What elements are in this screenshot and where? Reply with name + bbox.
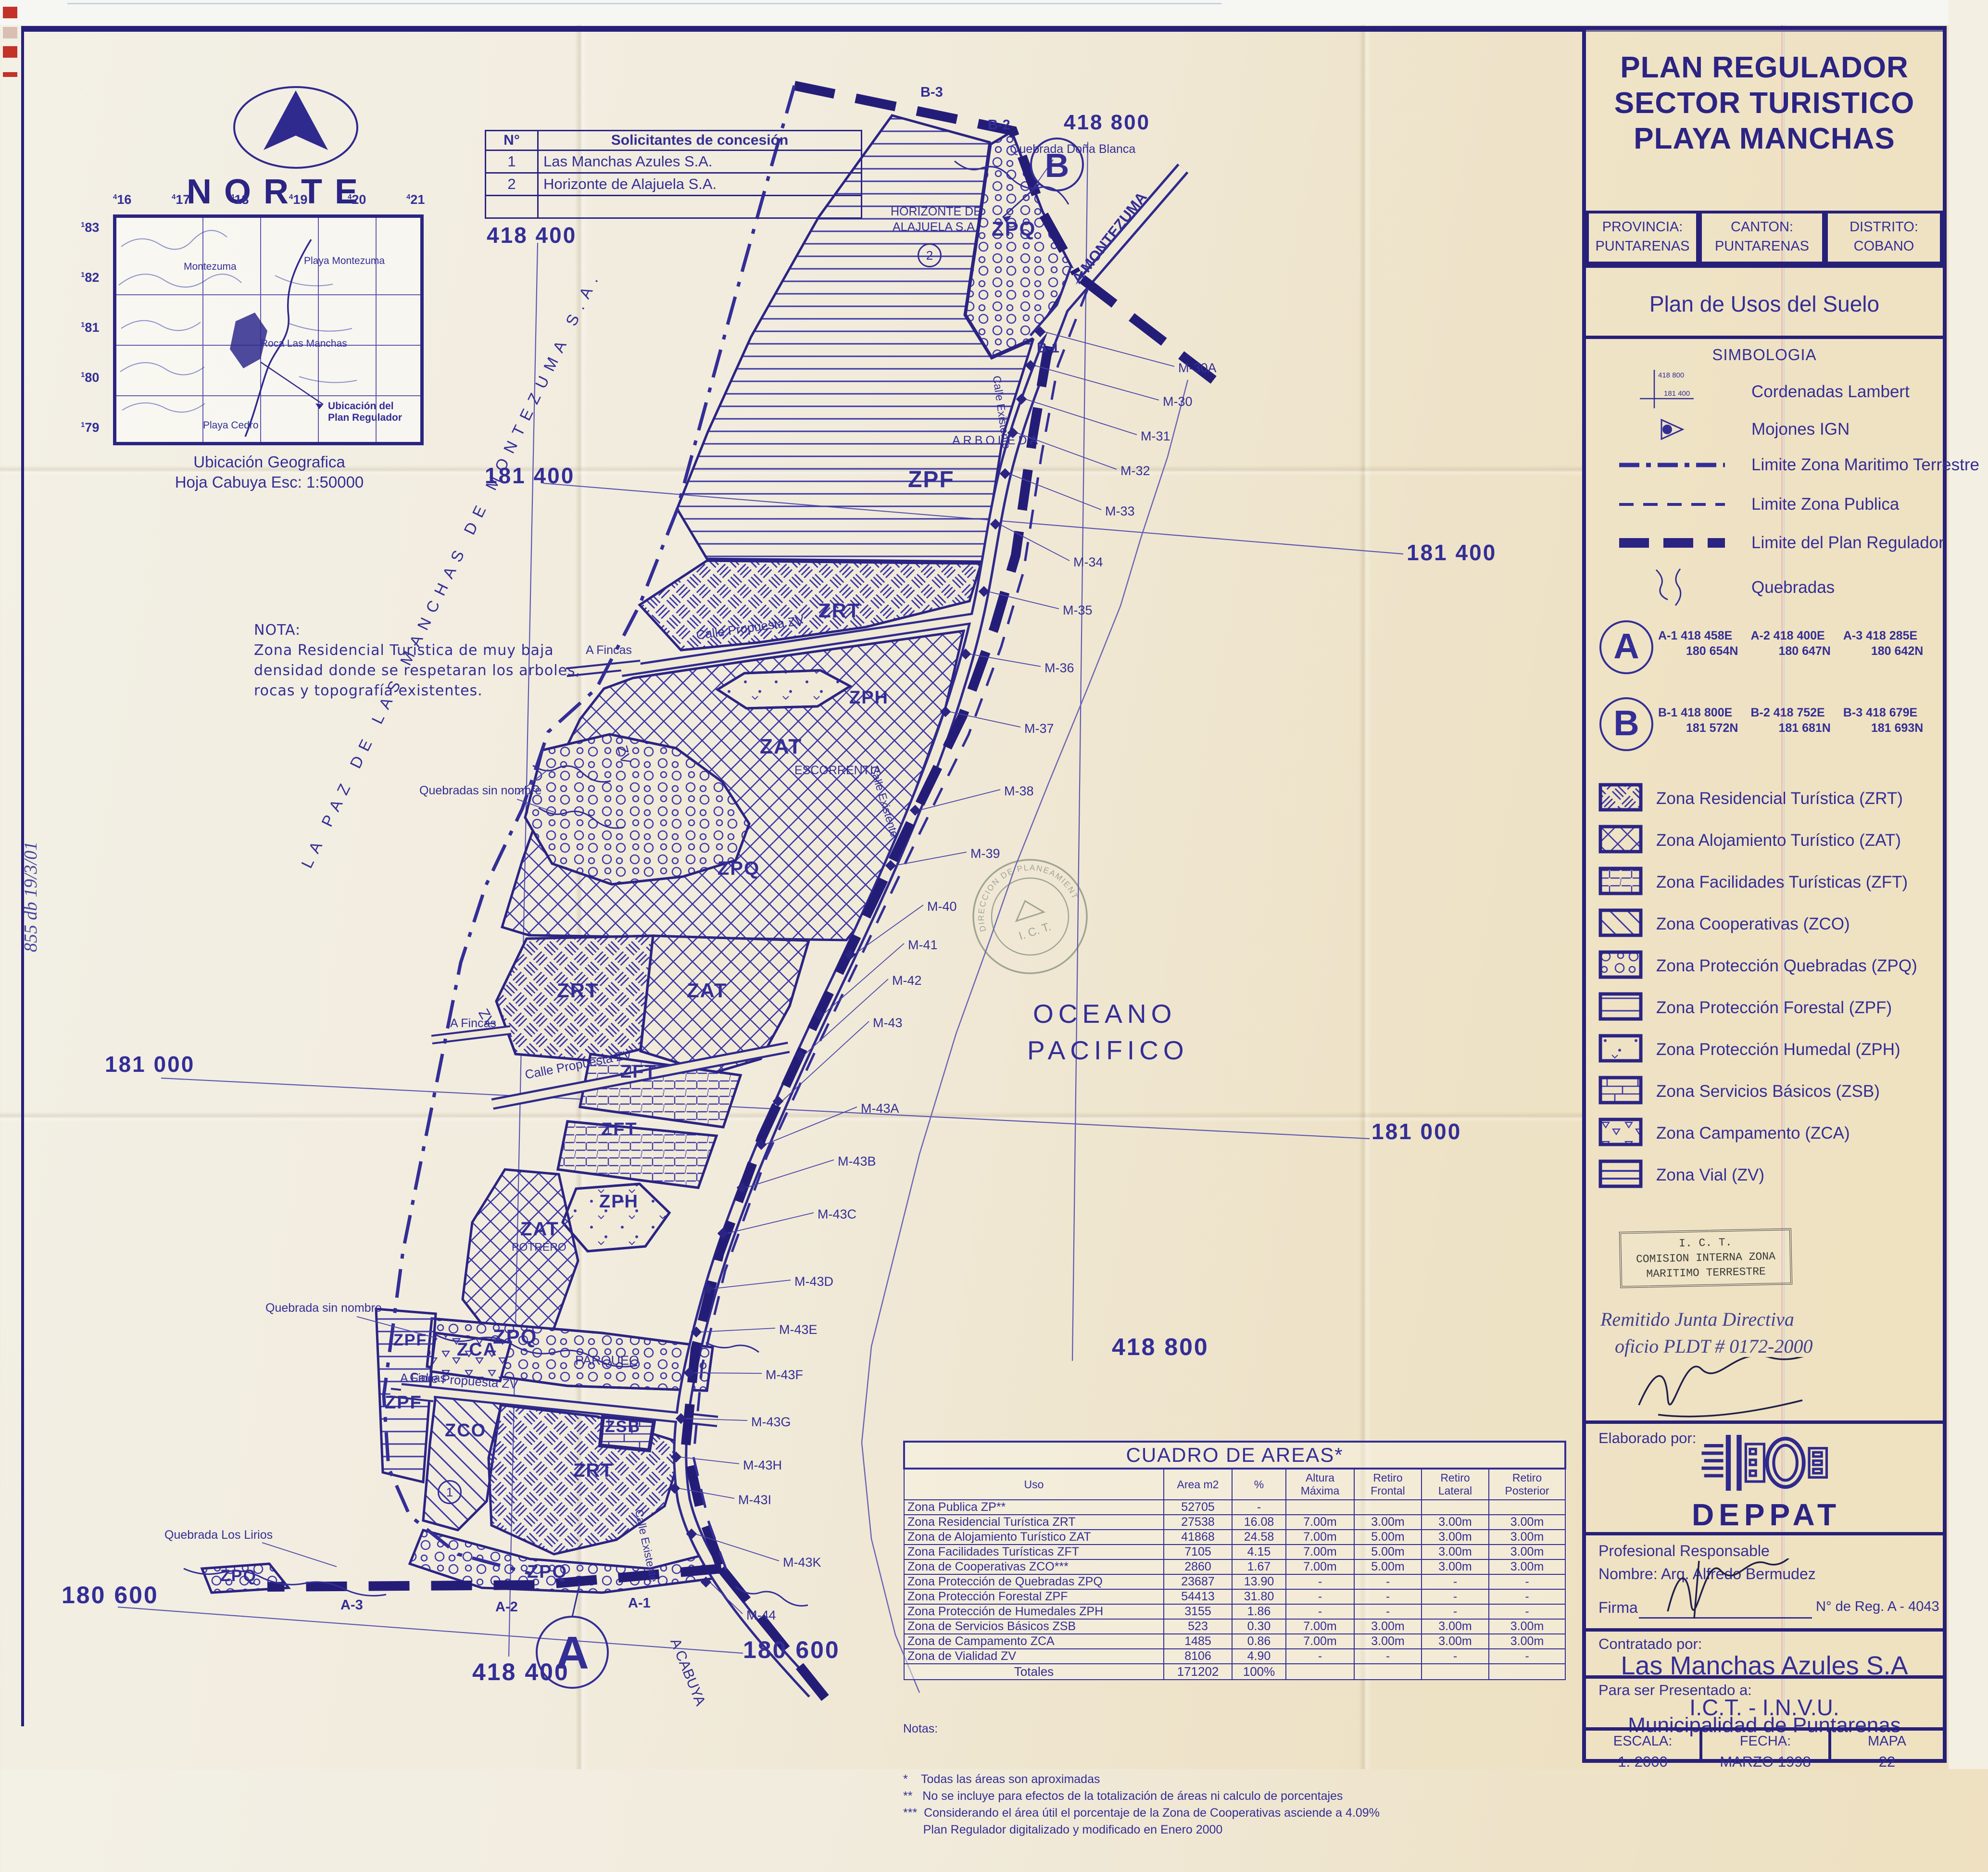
ref-coord-e: B-3 418 679E [1843, 705, 1923, 720]
inset-label-roca-las-manchas: Roca Las Manchas [261, 338, 347, 350]
areas-value-cell: - [1354, 1589, 1422, 1604]
inset-left-tick: 180 [81, 370, 99, 385]
mojon-label-M-33: M-33 [1105, 504, 1135, 518]
mapa-label: MAPA [1868, 1734, 1906, 1749]
dashed-icon [1593, 496, 1751, 513]
north-arrow [226, 82, 365, 180]
mojon-label-M-43G: M-43G [751, 1415, 791, 1429]
zone-zsb [600, 1417, 654, 1450]
mojon-label-M-43C: M-43C [818, 1207, 856, 1221]
legend-swatch-zca [1598, 1118, 1643, 1149]
heavy-icon [1593, 533, 1751, 553]
legend-zone-label: Zona Facilidades Turísticas (ZFT) [1656, 873, 1908, 892]
solicitante-number [486, 196, 538, 218]
legend-zone-label: Zona Alojamiento Turístico (ZAT) [1656, 831, 1901, 850]
solicitante-name: Las Manchas Azules S.A. [538, 151, 862, 173]
symbology-item-dashdot: Limite Zona Maritimo Terrestre [1593, 455, 1979, 475]
areas-value-cell: 3.00m [1489, 1634, 1565, 1649]
mojon-label-M-32: M-32 [1120, 464, 1150, 478]
areas-value-cell: 23687 [1164, 1574, 1232, 1589]
areas-total-label: Totales [904, 1664, 1164, 1680]
areas-value-cell: 3.00m [1422, 1530, 1489, 1545]
deppat-wordmark: DEPPAT [1663, 1497, 1870, 1533]
ref-b-circle: B [1599, 697, 1653, 751]
mojon-leader-M-43H [680, 1457, 739, 1464]
areas-value-cell: - [1286, 1649, 1354, 1664]
legend-swatch-zrt [1598, 783, 1643, 814]
symbology-items: 418 800181 400Cordenadas LambertMojones … [1586, 364, 1943, 604]
solicitante-row: 1Las Manchas Azules S.A. [486, 151, 862, 173]
areas-value-cell: 1.86 [1232, 1604, 1286, 1619]
areas-value-cell: 3.00m [1489, 1545, 1565, 1559]
areas-row: Zona Protección de Quebradas ZPQ2368713.… [904, 1574, 1565, 1589]
areas-value-cell: - [1354, 1649, 1422, 1664]
areas-value-cell: 3.00m [1489, 1530, 1565, 1545]
areas-notes: Notas: * Todas las áreas son aproximadas… [903, 1687, 1566, 1872]
mojon-label-M-30A: M-30A [1178, 361, 1217, 375]
areas-value-cell: 1.67 [1232, 1559, 1286, 1574]
areas-col-header: % [1232, 1469, 1286, 1500]
areas-row: Zona Residencial Turística ZRT2753816.08… [904, 1515, 1565, 1530]
zone-zrt-mid [496, 936, 653, 1061]
legend-zone-label: Zona Cooperativas (ZCO) [1656, 915, 1850, 934]
legend-swatch-zco [1598, 908, 1643, 940]
contratado-label: Contratado por: [1598, 1635, 1702, 1653]
panel-refpoints-section: A A-1 418 458E180 654NA-2 418 400E180 64… [1586, 603, 1943, 776]
nota-line2: densidad donde se respetaran los arboles… [254, 661, 580, 681]
mojon-icon [1593, 416, 1751, 443]
areas-value-cell: 31.80 [1232, 1589, 1286, 1604]
panel-zones-legend: Zona Residencial Turística (ZRT)Zona Alo… [1586, 776, 1943, 1203]
legend-zone-label: Zona Vial (ZV) [1656, 1166, 1764, 1185]
ref-a-col: A-3 418 285E180 642N [1843, 628, 1923, 659]
areas-value-cell: 3.00m [1422, 1634, 1489, 1649]
legend-zone-zv: Zona Vial (ZV) [1598, 1159, 1764, 1191]
ref-letter-a: A [555, 1627, 589, 1679]
areas-total-pct: 100% [1232, 1664, 1286, 1680]
areas-value-cell: 3.00m [1489, 1619, 1565, 1634]
ict-stamp-center: I. C. T. [1017, 920, 1053, 942]
inset-left-ticks: 183182181180179 [72, 220, 111, 461]
areas-value-cell: 3.00m [1489, 1515, 1565, 1530]
solicitante-number: 2 [486, 173, 538, 196]
nota-line3: rocas y topografía existentes. [254, 681, 580, 701]
areas-col-header: Altura Máxima [1286, 1469, 1354, 1500]
ref-coord-e: A-3 418 285E [1843, 628, 1923, 643]
areas-row: Zona Publica ZP**52705- [904, 1500, 1565, 1515]
ref-coord-n: 180 647N [1750, 643, 1830, 659]
inset-label-montezuma: Montezuma [184, 261, 237, 273]
areas-note-line: *** Considerando el área útil el porcent… [903, 1805, 1566, 1822]
mojon-leader-M-39 [894, 852, 967, 866]
solicitante-name [538, 196, 862, 218]
areas-value-cell [1286, 1500, 1354, 1515]
map-title-line1: PLAN REGULADOR [1586, 50, 1943, 86]
legend-zone-zsb: Zona Servicios Básicos (ZSB) [1598, 1076, 1880, 1107]
legend-zone-zrt: Zona Residencial Turística (ZRT) [1598, 783, 1903, 814]
mapa-value: 22 [1831, 1753, 1943, 1771]
mojon-label-M-30: M-30 [1163, 394, 1193, 409]
ref-coord-e: A-2 418 400E [1750, 628, 1830, 643]
inset-left-tick: 183 [81, 220, 99, 235]
legend-swatch-zpq [1598, 950, 1643, 981]
areas-uso-cell: Zona Protección Forestal ZPF [904, 1589, 1164, 1604]
nota-block: NOTA: Zona Residencial Turistica de muy … [254, 620, 580, 701]
areas-value-cell: - [1286, 1574, 1354, 1589]
mojon-label-M-43F: M-43F [766, 1368, 803, 1382]
areas-total-empty [1286, 1664, 1354, 1680]
areas-value-cell: - [1422, 1604, 1489, 1619]
solicitante-name: Horizonte de Alajuela S.A. [538, 173, 862, 196]
mojon-label-M-36: M-36 [1044, 661, 1074, 675]
mojon-label-M-34: M-34 [1073, 555, 1103, 569]
inset-label-ubicacion-2: Plan Regulador [328, 412, 402, 424]
areas-row: Zona de Servicios Básicos ZSB5230.307.00… [904, 1619, 1565, 1634]
symbology-item-dashed: Limite Zona Publica [1593, 495, 1899, 514]
firma-signature [1648, 1558, 1807, 1621]
areas-uso-cell: Zona de Servicios Básicos ZSB [904, 1619, 1164, 1634]
areas-row: Zona Protección de Humedales ZPH31551.86… [904, 1604, 1565, 1619]
areas-value-cell: - [1232, 1500, 1286, 1515]
inset-top-tick: 421 [406, 192, 425, 207]
legend-zone-zat: Zona Alojamiento Turístico (ZAT) [1598, 825, 1901, 856]
areas-value-cell: - [1354, 1604, 1422, 1619]
areas-value-cell: 7.00m [1286, 1530, 1354, 1545]
areas-value-cell: 0.86 [1232, 1634, 1286, 1649]
areas-value-cell: 13.90 [1232, 1574, 1286, 1589]
ref-coord-e: A-1 418 458E [1658, 628, 1738, 643]
areas-value-cell: 3.00m [1422, 1515, 1489, 1530]
areas-value-cell: 7.00m [1286, 1634, 1354, 1649]
margin-handwriting: 855 db 19/3/01 [20, 842, 41, 952]
north-arrow-icon [226, 82, 365, 178]
areas-value-cell: 52705 [1164, 1500, 1232, 1515]
areas-uso-cell: Zona Protección de Humedales ZPH [904, 1604, 1164, 1619]
mojon-label-M-43A: M-43A [861, 1101, 899, 1116]
panel-stamp-section: I. C. T. COMISION INTERNA ZONA MARITIMO … [1586, 1203, 1943, 1444]
areas-value-cell: 54413 [1164, 1589, 1232, 1604]
areas-value-cell: 3.00m [1422, 1619, 1489, 1634]
areas-row: Zona Protección Forestal ZPF5441331.80--… [904, 1589, 1565, 1604]
areas-value-cell: 8106 [1164, 1649, 1232, 1664]
handwriting-line1: Remitido Junta Directiva [1600, 1307, 1794, 1332]
inset-caption-line1: Ubicación Geografica [125, 452, 414, 472]
mojon-leader-M-38 [919, 790, 1000, 810]
legend-zone-zca: Zona Campamento (ZCA) [1598, 1118, 1850, 1149]
mojon-leader-M-31 [1025, 399, 1137, 435]
legend-zone-zph: Zona Protección Humedal (ZPH) [1598, 1034, 1900, 1065]
ref-b-coords: B-1 418 800E181 572NB-2 418 752E181 681N… [1658, 705, 1936, 736]
legend-swatch-zpf [1598, 992, 1643, 1023]
areas-uso-cell: Zona Publica ZP** [904, 1500, 1164, 1515]
zone-zph-2 [563, 1184, 669, 1251]
areas-value-cell: - [1489, 1574, 1565, 1589]
areas-value-cell: 2860 [1164, 1559, 1232, 1574]
ref-coord-e: B-2 418 752E [1750, 705, 1830, 720]
symbology-item-label: Limite del Plan Regulador [1751, 533, 1944, 553]
symbology-item-label: Quebradas [1751, 578, 1835, 597]
panel-uso-section: Plan de Usos del Suelo [1586, 264, 1943, 336]
panel-title-section: PLAN REGULADOR SECTOR TURISTICO PLAYA MA… [1586, 30, 1943, 211]
areas-notes-title: Notas: [903, 1721, 1566, 1737]
areas-total-area: 171202 [1164, 1664, 1232, 1680]
areas-uso-cell: Zona Residencial Turística ZRT [904, 1515, 1164, 1530]
areas-row: Zona de Cooperativas ZCO***28601.677.00m… [904, 1559, 1565, 1574]
areas-value-cell: 41868 [1164, 1530, 1232, 1545]
areas-value-cell: 3.00m [1354, 1619, 1422, 1634]
areas-value-cell: 3.00m [1489, 1559, 1565, 1574]
stamp-line3: MARITIMO TERRESTRE [1626, 1264, 1786, 1282]
areas-table-wrap: CUADRO DE AREAS* UsoArea m2%Altura Máxim… [903, 1441, 1566, 1872]
mojon-label-M-41: M-41 [908, 938, 938, 952]
inset-map-box: Montezuma Playa Montezuma Roca Las Manch… [113, 214, 424, 445]
ref-coord-n: 181 572N [1658, 720, 1738, 736]
areas-note-line: ** No se incluye para efectos de la tota… [903, 1788, 1566, 1805]
solicitantes-col2: Solicitantes de concesión [538, 131, 862, 151]
signature-scribble [1629, 1357, 1831, 1429]
inset-left-tick: 181 [81, 320, 99, 335]
areas-value-cell: - [1354, 1574, 1422, 1589]
inset-top-tick: 420 [348, 192, 366, 207]
areas-value-cell: 523 [1164, 1619, 1232, 1634]
inset-left-tick: 179 [81, 420, 99, 435]
mojon-label-M-43K: M-43K [783, 1555, 821, 1570]
panel-presentado-section: Para ser Presentado a: I.C.T. - I.N.V.U.… [1586, 1675, 1943, 1727]
areas-total-row: Totales171202100% [904, 1664, 1565, 1680]
title-panel: PLAN REGULADOR SECTOR TURISTICO PLAYA MA… [1582, 26, 1947, 1763]
solicitantes-table: N° Solicitantes de concesión 1Las Mancha… [485, 130, 862, 219]
areas-value-cell: - [1489, 1604, 1565, 1619]
map-subtitle: Plan de Usos del Suelo [1586, 291, 1943, 317]
panel-jurisdiction-row: PROVINCIA: PUNTARENAS CANTON: PUNTARENAS… [1586, 211, 1943, 264]
mojon-label-M-43: M-43 [873, 1016, 903, 1030]
areas-row: Zona de Vialidad ZV81064.90---- [904, 1649, 1565, 1664]
panel-profesional-section: Profesional Responsable Nombre: Arq. Alf… [1586, 1532, 1943, 1628]
province-value: PUNTARENAS [1589, 237, 1696, 256]
inset-caption-line2: Hoja Cabuya Esc: 1:50000 [125, 472, 414, 492]
map-title-line2: SECTOR TURISTICO [1586, 86, 1943, 121]
elaborado-label: Elaborado por: [1598, 1430, 1696, 1447]
legend-zone-zco: Zona Cooperativas (ZCO) [1598, 908, 1850, 940]
areas-value-cell: 3.00m [1422, 1559, 1489, 1574]
areas-col-header: Uso [904, 1469, 1164, 1500]
ref-coord-n: 180 642N [1843, 643, 1923, 659]
inset-left-tick: 182 [81, 270, 99, 285]
areas-row: Zona de Alojamiento Turístico ZAT4186824… [904, 1530, 1565, 1545]
mojon-label-M-43D: M-43D [794, 1274, 833, 1289]
nota-line1: Zona Residencial Turistica de muy baja [254, 641, 580, 661]
mojon-label-M-37: M-37 [1024, 721, 1054, 736]
areas-note-line: Plan Regulador digitalizado y modificado… [903, 1822, 1566, 1838]
symbology-item-label: Limite Zona Publica [1751, 495, 1899, 514]
areas-value-cell: - [1489, 1589, 1565, 1604]
areas-total-empty [1489, 1664, 1565, 1680]
registro-number: N° de Reg. A - 4043 [1816, 1599, 1939, 1615]
ref-coord-e: B-1 418 800E [1658, 705, 1738, 720]
areas-value-cell: 16.08 [1232, 1515, 1286, 1530]
areas-uso-cell: Zona de Campamento ZCA [904, 1634, 1164, 1649]
legend-swatch-zsb [1598, 1076, 1643, 1107]
inset-top-tick: 418 [230, 192, 249, 207]
mojon-label-M-38: M-38 [1004, 784, 1034, 798]
areas-value-cell: 27538 [1164, 1515, 1232, 1530]
areas-value-cell: 7.00m [1286, 1515, 1354, 1530]
areas-col-header: Retiro Lateral [1422, 1469, 1489, 1500]
mojon-leader-M-32 [1017, 433, 1117, 469]
areas-row: Zona de Campamento ZCA14850.867.00m3.00m… [904, 1634, 1565, 1649]
legend-zone-label: Zona Servicios Básicos (ZSB) [1656, 1082, 1880, 1101]
legend-zone-zpf: Zona Protección Forestal (ZPF) [1598, 992, 1892, 1023]
areas-table-title: CUADRO DE AREAS* [904, 1442, 1565, 1469]
areas-note-line: * Todas las áreas son aproximadas [903, 1771, 1566, 1788]
mojon-label-M-43B: M-43B [838, 1154, 876, 1168]
inset-top-ticks: 416417418419420421 [113, 192, 450, 212]
solicitante-row: 2Horizonte de Alajuela S.A. [486, 173, 862, 196]
mojon-leader-M-43D [712, 1280, 791, 1289]
areas-value-cell: 7.00m [1286, 1559, 1354, 1574]
canton-value: PUNTARENAS [1702, 237, 1822, 256]
areas-value-cell: 5.00m [1354, 1530, 1422, 1545]
areas-value-cell: 7.00m [1286, 1545, 1354, 1559]
solicitantes-col1: N° [486, 131, 538, 151]
firma-label: Firma [1598, 1599, 1638, 1617]
areas-total-empty [1422, 1664, 1489, 1680]
zone-zft-2 [558, 1121, 717, 1188]
dashdot-icon [1593, 456, 1751, 474]
areas-value-cell: - [1422, 1589, 1489, 1604]
legend-zone-zpq: Zona Protección Quebradas (ZPQ) [1598, 950, 1917, 981]
ref-a-circle: A [1599, 620, 1653, 674]
areas-value-cell: - [1489, 1649, 1565, 1664]
ref-b-col: B-2 418 752E181 681N [1750, 705, 1830, 736]
ref-a-col: A-1 418 458E180 654N [1658, 628, 1738, 659]
ref-coord-n: 181 681N [1750, 720, 1830, 736]
province-label: PROVINCIA: [1589, 217, 1696, 237]
symbology-item-label: Mojones IGN [1751, 420, 1850, 439]
areas-value-cell: 24.58 [1232, 1530, 1286, 1545]
areas-value-cell: 4.15 [1232, 1545, 1286, 1559]
areas-value-cell: 4.90 [1232, 1649, 1286, 1664]
ict-stamp-box: I. C. T. COMISION INTERNA ZONA MARITIMO … [1619, 1228, 1792, 1288]
legend-zone-label: Zona Campamento (ZCA) [1656, 1124, 1850, 1143]
handwriting-line2: oficio PLDT # 0172-2000 [1615, 1334, 1813, 1359]
ref-b-col: B-3 418 679E181 693N [1843, 705, 1923, 736]
symbology-item-label: Limite Zona Maritimo Terrestre [1751, 455, 1979, 475]
legend-zone-label: Zona Protección Humedal (ZPH) [1656, 1040, 1900, 1059]
solicitante-number: 1 [486, 151, 538, 173]
inset-top-tick: 419 [289, 192, 307, 207]
fecha-value: MARZO 1998 [1702, 1753, 1828, 1771]
legend-zone-label: Zona Protección Quebradas (ZPQ) [1656, 956, 1917, 976]
mojon-leader-M-34 [999, 524, 1069, 561]
escala-label: ESCALA: [1613, 1734, 1673, 1749]
solicitante-row [486, 196, 862, 218]
symbology-item-heavy: Limite del Plan Regulador [1593, 533, 1944, 553]
zone-zat-bottom [463, 1169, 578, 1343]
areas-value-cell [1422, 1500, 1489, 1515]
areas-col-header: Area m2 [1164, 1469, 1232, 1500]
ref-circle-a: A [537, 1585, 608, 1688]
fecha-label: FECHA: [1740, 1734, 1791, 1749]
mojon-label-M-44: M-44 [746, 1608, 776, 1622]
district-value: COBANO [1828, 237, 1940, 256]
mojon-leader-M-43F [693, 1373, 762, 1373]
ref-coord-n: 180 654N [1658, 643, 1738, 659]
areas-value-cell: 5.00m [1354, 1545, 1422, 1559]
areas-value-cell: - [1286, 1589, 1354, 1604]
svg-text:418 800: 418 800 [1658, 371, 1684, 379]
symbology-item-lambert: 418 800181 400Cordenadas Lambert [1593, 368, 1910, 416]
deppat-logo-icon [1689, 1432, 1848, 1494]
mojon-label-M-43E: M-43E [779, 1322, 818, 1337]
inset-label-playa-montezuma: Playa Montezuma [304, 255, 385, 267]
areas-value-cell: 0.30 [1232, 1619, 1286, 1634]
areas-value-cell: - [1422, 1649, 1489, 1664]
panel-contratado-section: Contratado por: Las Manchas Azules S.A [1586, 1628, 1943, 1675]
inset-label-playa-cedro: Playa Cedro [203, 420, 259, 431]
ref-letter-b: B [1045, 147, 1069, 184]
legend-swatch-zft [1598, 867, 1643, 898]
symbology-item-mojon: Mojones IGN [1593, 416, 1850, 443]
areas-value-cell: 5.00m [1354, 1559, 1422, 1574]
legend-zone-label: Zona Residencial Turística (ZRT) [1656, 789, 1903, 808]
legend-zone-label: Zona Protección Forestal (ZPF) [1656, 998, 1892, 1018]
areas-col-header: Retiro Posterior [1489, 1469, 1565, 1500]
legend-zone-zft: Zona Facilidades Turísticas (ZFT) [1598, 867, 1908, 898]
inset-caption: Ubicación Geografica Hoja Cabuya Esc: 1:… [125, 452, 414, 492]
ref-a-coords: A-1 418 458E180 654NA-2 418 400E180 647N… [1658, 628, 1936, 659]
areas-value-cell: - [1286, 1604, 1354, 1619]
inset-top-tick: 416 [113, 192, 131, 207]
areas-uso-cell: Zona de Vialidad ZV [904, 1649, 1164, 1664]
mojon-label-M-39: M-39 [970, 846, 1000, 861]
areas-uso-cell: Zona de Alojamiento Turístico ZAT [904, 1530, 1164, 1545]
panel-symbology-section: SIMBOLOGIA 418 800181 400Cordenadas Lamb… [1586, 336, 1943, 603]
solicitantes-table-wrap: N° Solicitantes de concesión 1Las Mancha… [485, 130, 862, 219]
areas-value-cell: 7105 [1164, 1545, 1232, 1559]
mojon-label-M-35: M-35 [1063, 603, 1093, 617]
areas-value-cell [1489, 1500, 1565, 1515]
areas-value-cell: 7.00m [1286, 1619, 1354, 1634]
areas-uso-cell: Zona Facilidades Turísticas ZFT [904, 1545, 1164, 1559]
areas-uso-cell: Zona Protección de Quebradas ZPQ [904, 1574, 1164, 1589]
areas-row: Zona Facilidades Turísticas ZFT71054.157… [904, 1545, 1565, 1559]
mojon-label-M-31: M-31 [1141, 429, 1170, 443]
map-title-line3: PLAYA MANCHAS [1586, 121, 1943, 157]
symbology-heading: SIMBOLOGIA [1586, 346, 1943, 364]
inset-top-tick: 417 [172, 192, 190, 207]
nota-title: NOTA: [254, 620, 580, 641]
legend-swatch-zat [1598, 825, 1643, 856]
ref-a-col: A-2 418 400E180 647N [1750, 628, 1830, 659]
ref-b-col: B-1 418 800E181 572N [1658, 705, 1738, 736]
areas-value-cell: 1485 [1164, 1634, 1232, 1649]
areas-total-empty [1354, 1664, 1422, 1680]
escala-value: 1: 2000 [1586, 1753, 1699, 1771]
district-label: DISTRITO: [1828, 217, 1940, 237]
legend-swatch-zph [1598, 1034, 1643, 1065]
areas-value-cell: 3155 [1164, 1604, 1232, 1619]
lambert-icon: 418 800181 400 [1593, 368, 1751, 416]
ref-coord-n: 181 693N [1843, 720, 1923, 736]
areas-value-cell: - [1422, 1574, 1489, 1589]
areas-value-cell: 3.00m [1354, 1634, 1422, 1649]
svg-text:181 400: 181 400 [1664, 389, 1690, 398]
areas-uso-cell: Zona de Cooperativas ZCO*** [904, 1559, 1164, 1574]
mojon-label-M-40: M-40 [927, 899, 957, 914]
location-inset: 416417418419420421 183182181180179 Monte… [72, 192, 447, 481]
mojon-label-M-42: M-42 [892, 973, 922, 988]
